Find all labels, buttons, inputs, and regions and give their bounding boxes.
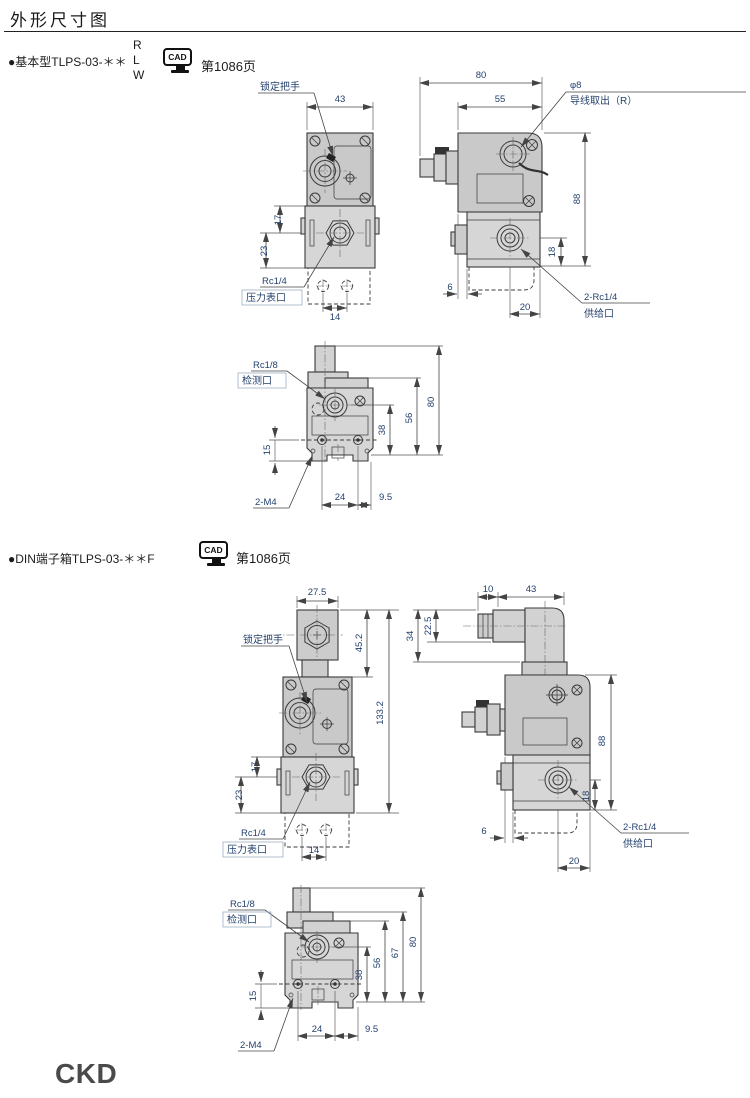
cad-icon-stand <box>176 66 185 70</box>
wire-outlet-label: 导线取出（R） <box>570 94 637 107</box>
dim-43: 43 <box>526 584 537 595</box>
gauge-port-label[interactable]: 压力表口 <box>246 291 286 304</box>
cad-icon-base <box>207 563 225 567</box>
din-elbow-connector <box>525 608 564 662</box>
supply-thread-label: 2-Rc1/4 <box>584 292 617 303</box>
dim-15: 15 <box>248 991 259 1002</box>
dim-56: 56 <box>372 958 383 969</box>
variant-r: R <box>133 38 144 53</box>
din-bottom-view-drawing: Rc1/8 检测口 38 56 67 80 15 2-M4 24 9.5 <box>215 885 475 1070</box>
dim-17: 17 <box>273 215 284 226</box>
dim-38: 38 <box>377 425 388 436</box>
valve-body-front <box>273 605 358 847</box>
valve-body-bottom <box>301 341 379 463</box>
lock-handle-label: 锁定把手 <box>260 80 300 93</box>
piping-outline-dashed <box>515 810 577 833</box>
ckd-logo: CKD <box>55 1058 117 1090</box>
cad-icon-stand <box>212 559 221 563</box>
dim-24: 24 <box>312 1024 323 1035</box>
dim-24: 24 <box>335 492 346 503</box>
variant-w: W <box>133 68 144 83</box>
check-port-label[interactable]: 检测口 <box>227 913 257 926</box>
din-side-view-drawing: 10 43 22.5 34 88 18 6 20 2-Rc1/4 供给口 <box>405 583 750 880</box>
dim-20: 20 <box>520 302 531 313</box>
check-thread-label: Rc1/8 <box>253 360 278 371</box>
dim-88: 88 <box>597 736 608 747</box>
valve-body-side <box>462 601 590 833</box>
section-din-label: ●DIN端子箱TLPS-03-＊＊F <box>8 550 155 567</box>
basic-bottom-view-drawing: Rc1/8 检测口 38 56 80 15 2-M4 24 9.5 <box>225 338 470 520</box>
cad-icon-base <box>171 70 189 74</box>
dim-23: 23 <box>259 246 270 257</box>
dim-22-5: 22.5 <box>423 617 434 636</box>
dim-23: 23 <box>234 790 245 801</box>
cad-download-icon-din[interactable]: CAD <box>199 541 233 571</box>
cad-download-icon[interactable]: CAD <box>163 48 197 78</box>
supply-port-label[interactable]: 供给口 <box>623 837 653 850</box>
title-rule <box>4 31 746 32</box>
piping-outline-dashed <box>469 267 534 290</box>
valve-body-bottom <box>279 885 361 1010</box>
dim-43: 43 <box>335 94 346 105</box>
dim-133-2: 133.2 <box>375 701 386 725</box>
knob-shaft-tip <box>462 712 475 727</box>
dim-80: 80 <box>408 937 419 948</box>
check-port-stem <box>293 888 310 912</box>
gauge-thread-label: Rc1/4 <box>262 276 287 287</box>
supply-thread-label: 2-Rc1/4 <box>623 822 656 833</box>
dim-15: 15 <box>262 445 273 456</box>
dim-14: 14 <box>309 845 320 856</box>
dim-67: 67 <box>390 948 401 959</box>
lock-handle-label: 锁定把手 <box>243 633 283 646</box>
dim-56: 56 <box>404 413 415 424</box>
dim-27-5: 27.5 <box>308 587 327 598</box>
mounting-outline-dashed <box>285 813 349 847</box>
basic-side-view-drawing: 80 55 φ8 导线取出（R） 88 18 6 20 2-Rc1/4 供给口 <box>408 62 750 324</box>
dim-17: 17 <box>250 762 261 773</box>
check-port-label[interactable]: 检测口 <box>242 374 272 387</box>
cad-screen-label: CAD <box>163 48 192 66</box>
supply-port-label[interactable]: 供给口 <box>584 307 614 320</box>
dim-18: 18 <box>581 791 592 802</box>
basic-front-view-drawing: 锁定把手 43 17 23 Rc1/4 压力表口 14 <box>230 72 420 324</box>
variant-l: L <box>133 53 144 68</box>
dim-9-5: 9.5 <box>379 492 392 503</box>
valve-body-side <box>420 133 548 290</box>
check-thread-label: Rc1/8 <box>230 899 255 910</box>
mount-thread-label: 2-M4 <box>240 1040 262 1051</box>
dim-45-2: 45.2 <box>354 634 365 653</box>
gauge-port-label[interactable]: 压力表口 <box>227 843 267 856</box>
dim-38: 38 <box>354 970 365 981</box>
dim-18: 18 <box>547 247 558 258</box>
knob-shaft-tip <box>420 159 434 177</box>
section-basic-label: ●基本型TLPS-03-＊＊ <box>8 53 127 70</box>
gauge-thread-label: Rc1/4 <box>241 828 266 839</box>
wire-diameter-label: φ8 <box>570 80 581 91</box>
dim-14: 14 <box>330 312 341 323</box>
dim-6: 6 <box>481 826 486 837</box>
din-front-view-drawing: 27.5 锁定把手 45.2 133.2 17 23 Rc1/4 压力表口 14 <box>213 585 413 878</box>
dim-88: 88 <box>572 194 583 205</box>
dim-20: 20 <box>569 856 580 867</box>
valve-body-front <box>301 133 379 304</box>
mount-thread-label: 2-M4 <box>255 497 277 508</box>
variant-list: R L W <box>133 38 144 83</box>
dim-80: 80 <box>426 397 437 408</box>
page-title: 外形尺寸图 <box>10 6 110 31</box>
dim-6: 6 <box>447 282 452 293</box>
mounting-outline-dashed <box>308 268 370 304</box>
dim-55: 55 <box>495 94 506 105</box>
dim-80: 80 <box>476 70 487 81</box>
page-reference-din[interactable]: 第1086页 <box>236 548 291 567</box>
leader-lines <box>521 92 746 303</box>
dim-9-5: 9.5 <box>365 1024 378 1035</box>
cad-screen-label: CAD <box>199 541 228 559</box>
dim-10: 10 <box>483 584 494 595</box>
catalog-page: 外形尺寸图 ●基本型TLPS-03-＊＊ R L W CAD 第1086页 <box>0 0 750 1098</box>
dim-34: 34 <box>405 631 416 642</box>
